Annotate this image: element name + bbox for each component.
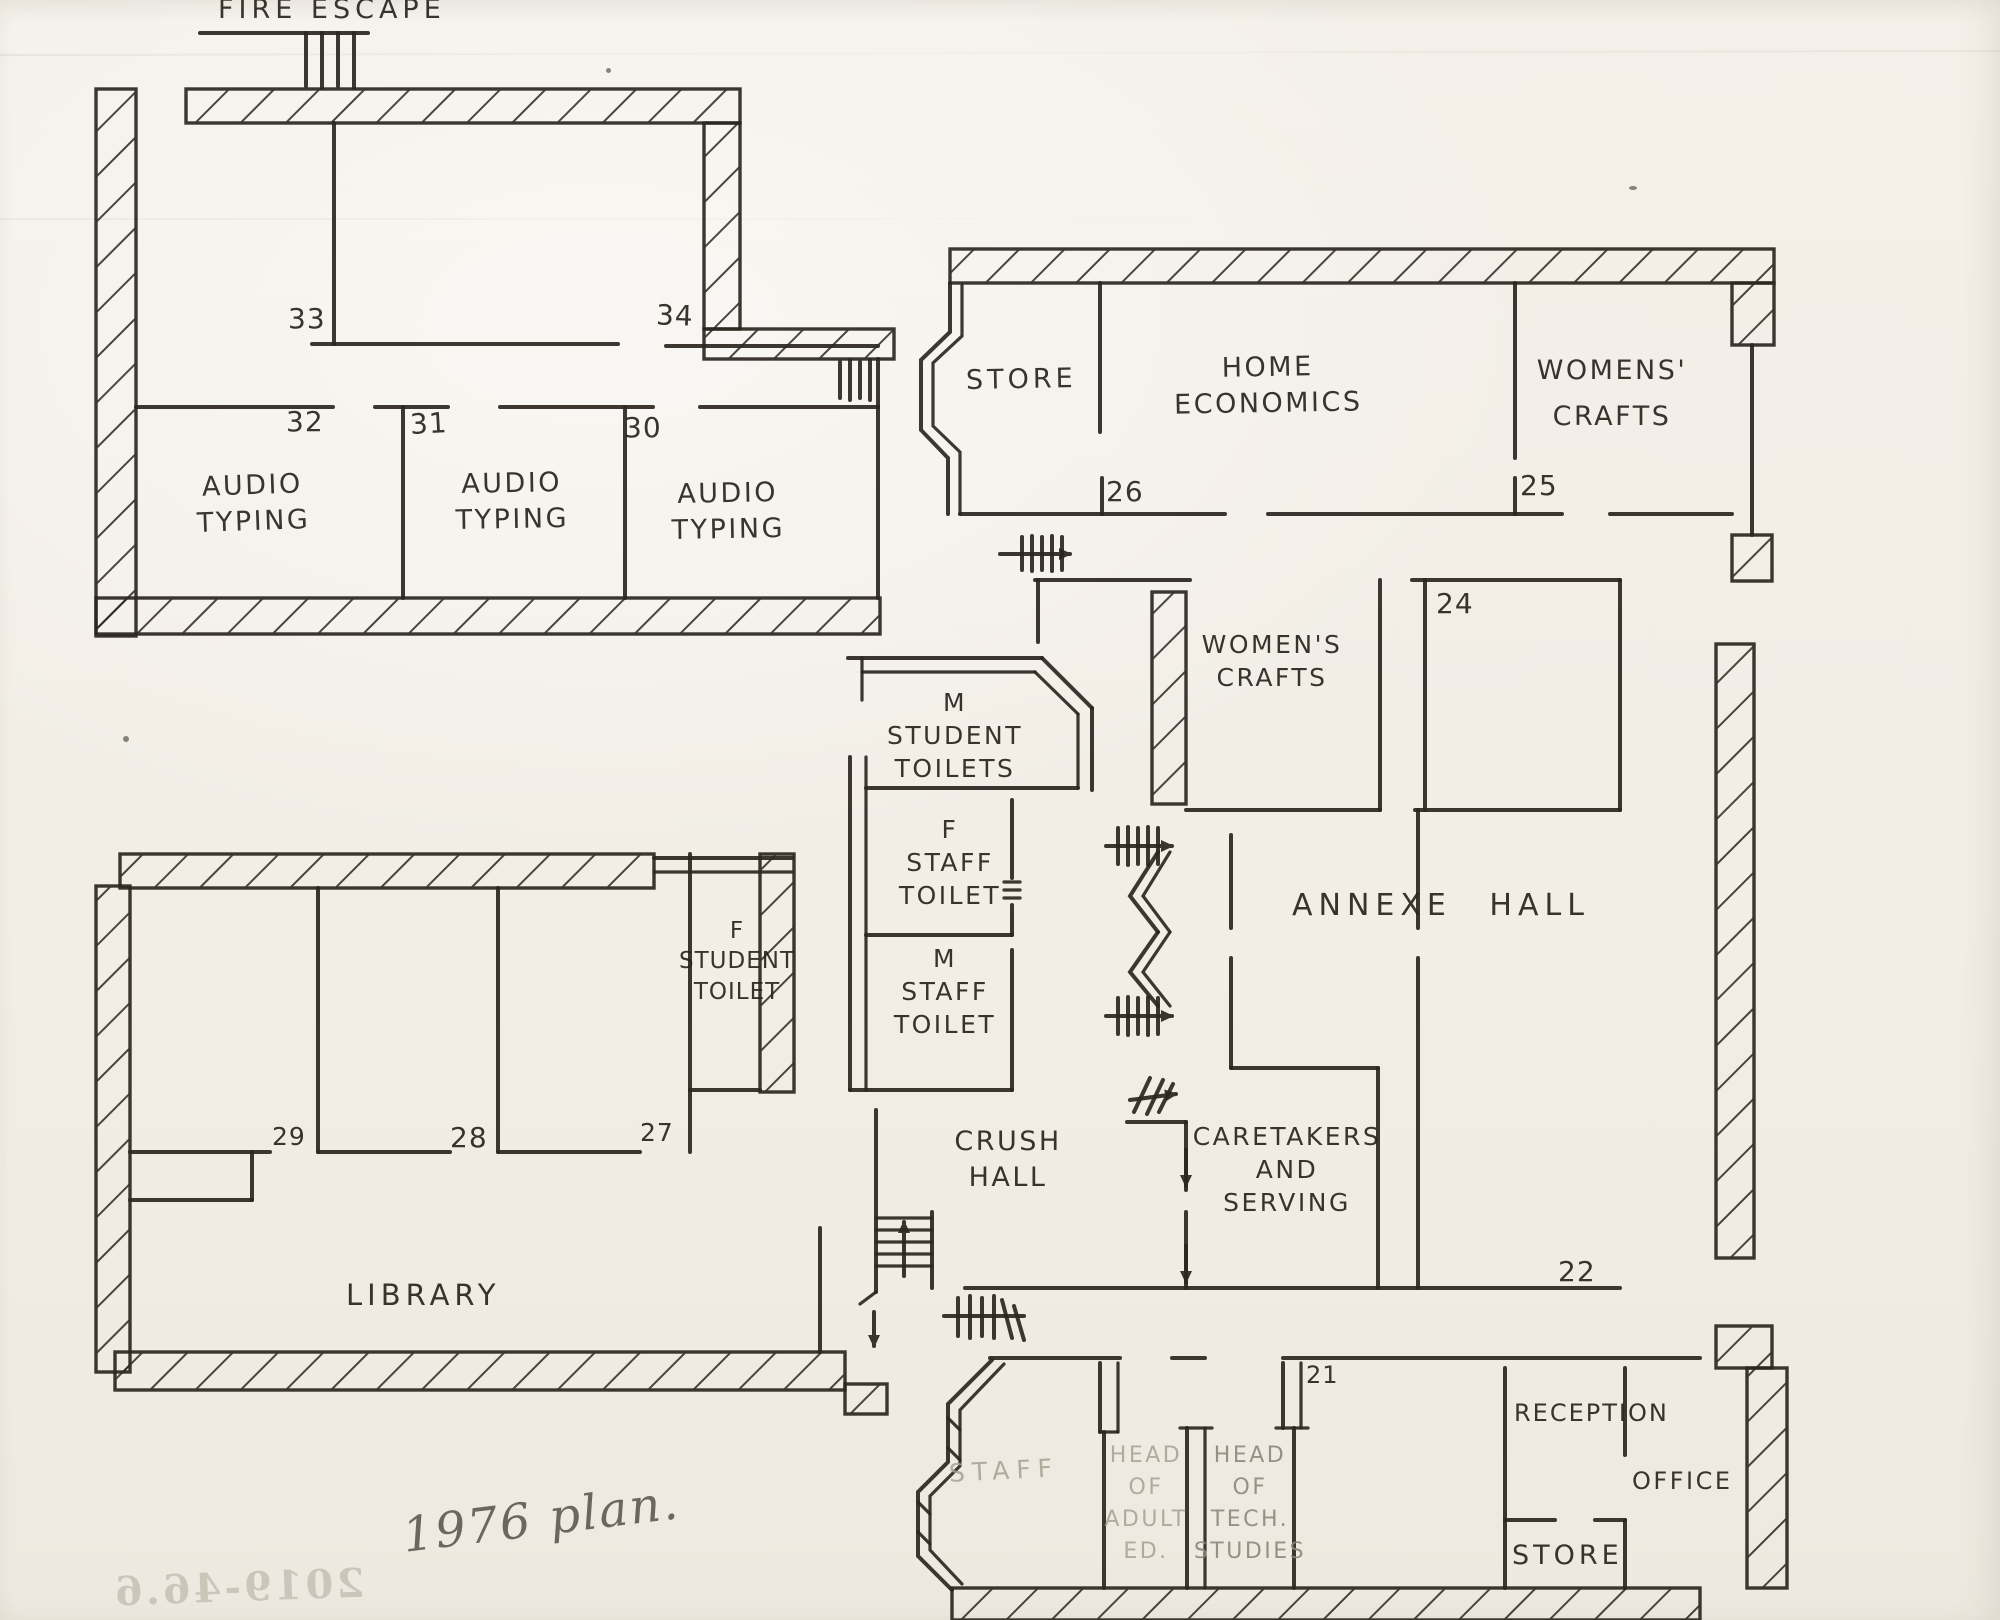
room-number-24: 24 — [1436, 586, 1474, 623]
label-womens-crafts-top: WOMENS' CRAFTS — [1537, 348, 1688, 440]
room-number-27: 27 — [640, 1116, 674, 1149]
bleed-through-text: 2019-46.6 — [111, 1558, 365, 1620]
label-head-of-adult-ed: HEAD OF ADULT ED. — [1104, 1440, 1187, 1568]
audio-typing-block-walls — [96, 89, 894, 636]
label-f-student-toilet: F STUDENT TOILET — [679, 916, 795, 1007]
ink-speck — [1629, 186, 1637, 190]
room-number-32: 32 — [286, 404, 324, 441]
stairs-icon-home-economics — [1000, 536, 1070, 571]
label-audio-typing-32: AUDIO TYPING — [195, 466, 311, 541]
label-home-economics: HOME ECONOMICS — [1173, 348, 1363, 423]
room-number-29: 29 — [272, 1120, 306, 1153]
stairs-icon-annexe-upper — [1106, 827, 1172, 865]
room-number-26: 26 — [1106, 474, 1144, 511]
room-number-22: 22 — [1558, 1254, 1596, 1291]
ink-speck — [606, 68, 611, 73]
label-reception: RECEPTION — [1514, 1398, 1669, 1430]
label-store-top: STORE — [966, 361, 1077, 399]
label-m-student-toilets: M STUDENT TOILETS — [887, 686, 1023, 785]
label-fire-escape: FIRE ESCAPE — [218, 0, 446, 28]
ink-speck — [123, 736, 129, 742]
label-caretakers: CARETAKERS AND SERVING — [1193, 1120, 1382, 1219]
floor-plan-sheet: FIRE ESCAPE 33 34 32 31 30 AUDIO TYPING … — [0, 0, 2000, 1620]
steps-icon-room34 — [840, 360, 870, 400]
stairs-icon-caretakers-entry — [1130, 1078, 1176, 1114]
fire-escape-stairs-icon — [200, 33, 368, 88]
gate-icon-entrance — [874, 1296, 1024, 1346]
label-office: OFFICE — [1632, 1466, 1733, 1498]
label-f-staff-toilet: F STAFF TOILET — [899, 813, 1001, 912]
room-number-30: 30 — [624, 410, 662, 447]
label-head-of-tech-studies: HEAD OF TECH. STUDIES — [1194, 1440, 1306, 1568]
room-number-25: 25 — [1520, 468, 1558, 505]
room-number-33: 33 — [288, 301, 326, 338]
room-number-28: 28 — [450, 1120, 488, 1157]
crush-hall-stairs-icon — [860, 1110, 932, 1304]
room-number-21: 21 — [1306, 1360, 1339, 1392]
label-annexe-hall: ANNEXE HALL — [1292, 886, 1590, 926]
label-staff: STAFF — [948, 1451, 1060, 1490]
label-m-staff-toilet: M STAFF TOILET — [894, 942, 996, 1041]
label-womens-crafts-mid: WOMEN'S CRAFTS — [1202, 628, 1343, 694]
label-audio-typing-31: AUDIO TYPING — [455, 465, 570, 538]
label-store-bottom: STORE — [1512, 1538, 1623, 1574]
label-library: LIBRARY — [346, 1276, 500, 1314]
floorplan-drawing — [0, 0, 2000, 1620]
label-crush-hall: CRUSH HALL — [954, 1124, 1061, 1195]
room-number-34: 34 — [655, 297, 694, 335]
label-audio-typing-30: AUDIO TYPING — [671, 475, 786, 548]
stairs-icon-annexe-lower — [1106, 997, 1172, 1035]
room-number-31: 31 — [409, 405, 449, 444]
